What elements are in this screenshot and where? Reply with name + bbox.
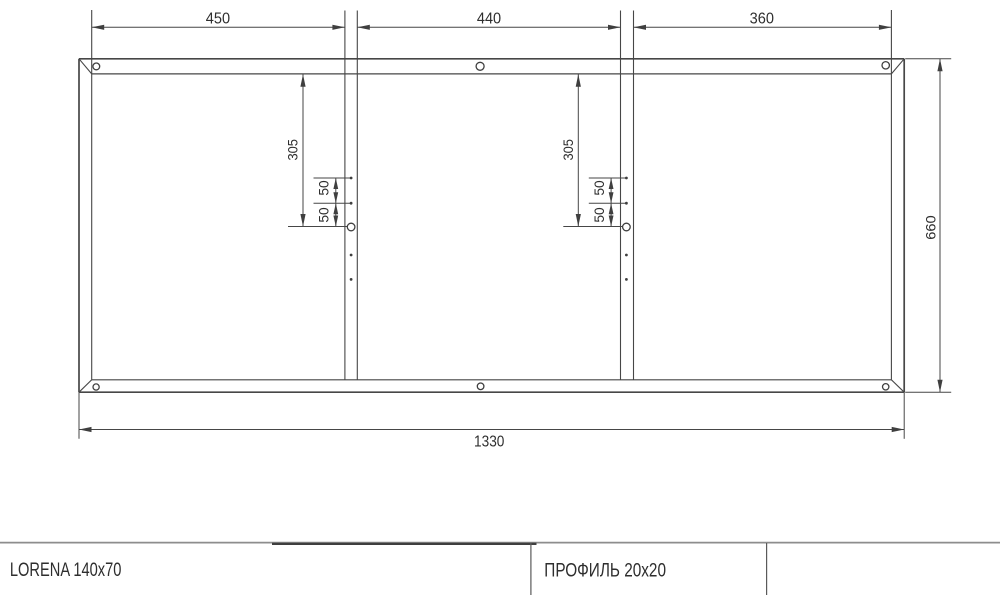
svg-text:50: 50 bbox=[592, 207, 607, 223]
svg-text:ПРОФИЛЬ 20x20: ПРОФИЛЬ 20x20 bbox=[544, 560, 666, 581]
svg-text:1330: 1330 bbox=[474, 434, 505, 451]
svg-text:305: 305 bbox=[286, 139, 301, 161]
svg-text:50: 50 bbox=[317, 180, 332, 196]
svg-text:450: 450 bbox=[206, 10, 230, 27]
svg-text:440: 440 bbox=[477, 10, 501, 27]
svg-text:LORENA 140x70: LORENA 140x70 bbox=[10, 560, 122, 581]
svg-text:360: 360 bbox=[750, 10, 774, 27]
svg-text:660: 660 bbox=[924, 215, 940, 240]
svg-text:305: 305 bbox=[561, 139, 576, 161]
svg-text:50: 50 bbox=[317, 207, 332, 223]
svg-text:50: 50 bbox=[592, 180, 607, 196]
